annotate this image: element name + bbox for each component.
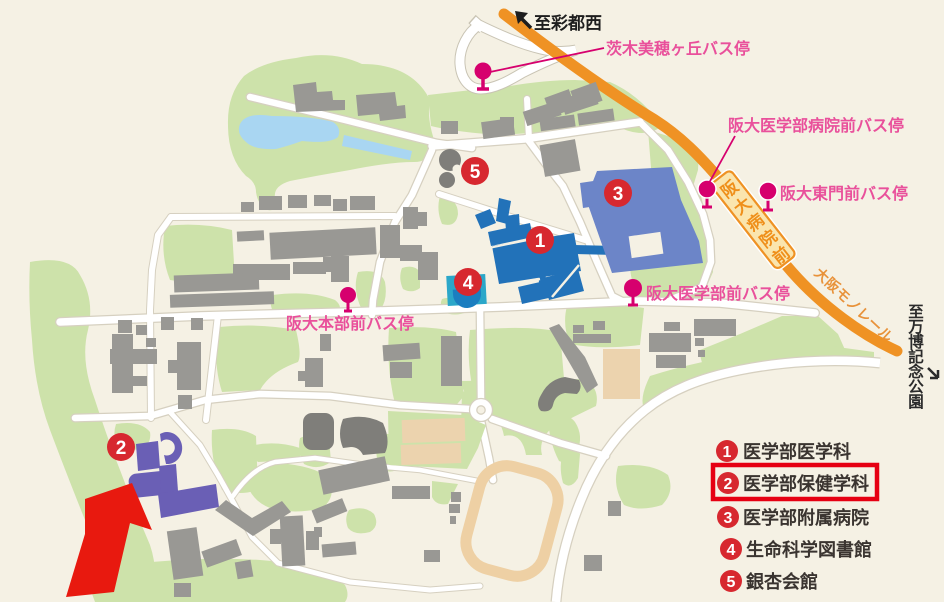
svg-text:阪大本部前バス停: 阪大本部前バス停 [286, 314, 414, 333]
svg-text:至彩都西: 至彩都西 [534, 13, 602, 33]
svg-text:4: 4 [727, 542, 736, 559]
svg-text:阪大東門前バス停: 阪大東門前バス停 [780, 184, 908, 203]
svg-text:1: 1 [723, 444, 732, 461]
svg-text:阪大医学部前バス停: 阪大医学部前バス停 [646, 284, 790, 303]
svg-text:2: 2 [724, 476, 733, 493]
svg-text:生命科学図書館: 生命科学図書館 [746, 539, 872, 560]
svg-text:銀杏会館: 銀杏会館 [746, 571, 818, 592]
svg-text:3: 3 [613, 184, 624, 205]
svg-text:茨木美穂ヶ丘バス停: 茨木美穂ヶ丘バス停 [606, 39, 750, 58]
svg-text:5: 5 [727, 574, 736, 591]
svg-text:医学部附属病院: 医学部附属病院 [743, 507, 869, 528]
svg-text:医学部保健学科: 医学部保健学科 [743, 473, 869, 494]
svg-text:医学部医学科: 医学部医学科 [743, 441, 851, 462]
svg-text:至万博記念公園: 至万博記念公園 [907, 303, 924, 411]
svg-text:2: 2 [116, 438, 127, 459]
svg-text:5: 5 [470, 162, 481, 183]
svg-text:4: 4 [463, 273, 474, 294]
svg-text:3: 3 [724, 510, 733, 527]
svg-text:阪大医学部病院前バス停: 阪大医学部病院前バス停 [728, 116, 904, 135]
svg-text:1: 1 [535, 231, 546, 252]
